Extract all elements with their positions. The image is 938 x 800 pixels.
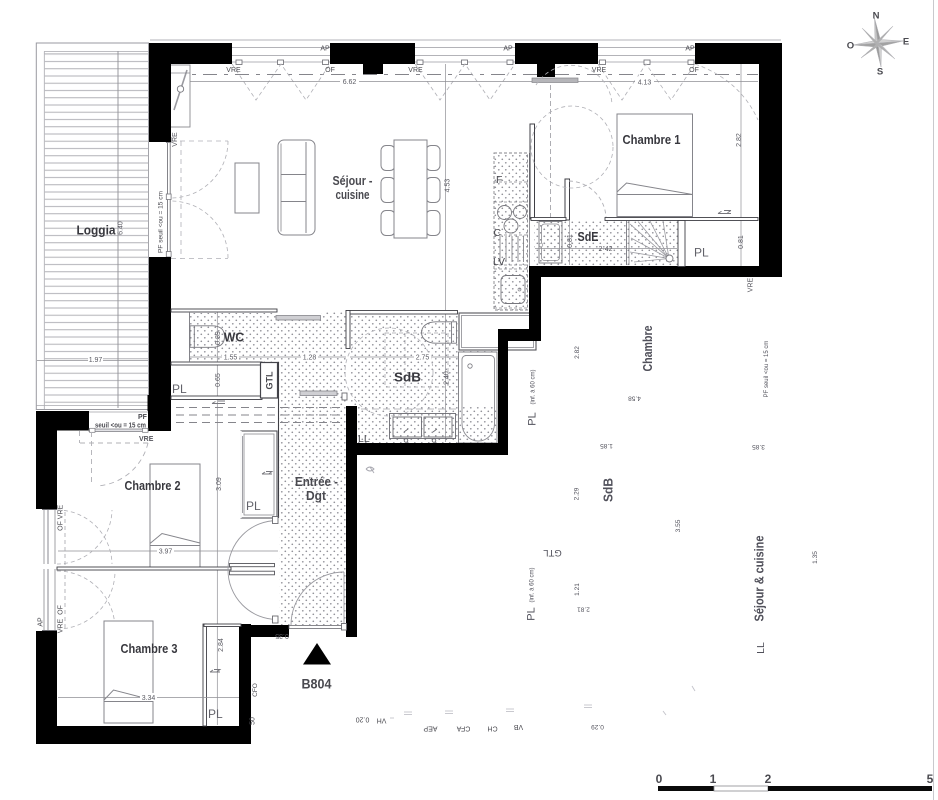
svg-text:Séjour & cuisine: Séjour & cuisine: [753, 535, 767, 621]
svg-text:cuisine: cuisine: [336, 187, 370, 202]
svg-text:AP: AP: [503, 46, 513, 53]
svg-text:2.82: 2.82: [574, 346, 581, 359]
svg-text:B804: B804: [302, 677, 332, 692]
svg-text:VRE: VRE: [172, 132, 179, 147]
svg-text:Chambre 3: Chambre 3: [121, 641, 178, 656]
svg-text:1.55: 1.55: [224, 355, 238, 362]
svg-text:1.28: 1.28: [303, 355, 317, 362]
svg-text:VRE: VRE: [226, 67, 241, 74]
svg-text:PL: PL: [527, 412, 539, 425]
svg-text:2·42: 2·42: [598, 246, 612, 253]
svg-text:VRE: VRE: [58, 618, 65, 633]
svg-text:1.97: 1.97: [89, 357, 103, 364]
svg-text:3.55: 3.55: [675, 519, 682, 532]
svg-text:WC: WC: [224, 330, 245, 345]
svg-text:3.85: 3.85: [752, 443, 765, 450]
svg-text:OF: OF: [325, 67, 335, 74]
svg-text:0.65: 0.65: [215, 373, 222, 387]
svg-text:2.82: 2.82: [736, 133, 743, 147]
svg-text:2.29: 2.29: [574, 487, 581, 500]
svg-text:OF: OF: [58, 605, 65, 615]
svg-text:0.81: 0.81: [738, 235, 745, 249]
svg-text:VRE: VRE: [592, 67, 607, 74]
svg-text:2.40: 2.40: [444, 371, 451, 385]
svg-text:seuil <ou = 15 cm: seuil <ou = 15 cm: [95, 423, 146, 430]
svg-text:E: E: [903, 37, 909, 48]
svg-text:2.84: 2.84: [218, 638, 225, 652]
svg-text:50: 50: [250, 717, 257, 725]
svg-text:O: O: [847, 41, 854, 52]
svg-text:PL: PL: [172, 382, 187, 396]
svg-text:VB: VB: [514, 723, 524, 730]
svg-text:LL: LL: [755, 642, 767, 654]
svg-text:0.81: 0.81: [567, 234, 574, 248]
svg-text:AEP: AEP: [423, 725, 437, 732]
svg-text:GTL: GTL: [265, 371, 275, 389]
svg-text:AP: AP: [320, 46, 330, 53]
svg-text:LV: LV: [493, 256, 505, 268]
svg-text:(inf. à 60 cm): (inf. à 60 cm): [531, 369, 537, 404]
svg-text:Entrée -: Entrée -: [295, 474, 338, 489]
svg-text:(inf. à 60 cm): (inf. à 60 cm): [530, 567, 536, 602]
svg-text:2.75: 2.75: [416, 355, 430, 362]
svg-text:SdE: SdE: [578, 229, 599, 244]
svg-text:4.58: 4.58: [628, 395, 641, 402]
svg-text:0.20: 0.20: [356, 716, 370, 723]
svg-text:0: 0: [656, 772, 663, 786]
svg-text:PF seuil <ou = 15 cm: PF seuil <ou = 15 cm: [764, 341, 770, 398]
svg-text:1.85: 1.85: [600, 442, 613, 449]
svg-text:4.53: 4.53: [445, 179, 452, 193]
svg-text:3.34: 3.34: [142, 695, 156, 702]
svg-text:1.35: 1.35: [812, 551, 819, 564]
svg-text:PL: PL: [208, 707, 223, 721]
svg-text:Chambre 1: Chambre 1: [623, 132, 681, 147]
svg-text:S: S: [877, 67, 883, 78]
svg-text:SdB: SdB: [394, 370, 421, 385]
svg-text:C: C: [494, 227, 502, 239]
svg-text:PL: PL: [694, 246, 709, 260]
svg-text:CH: CH: [487, 725, 497, 732]
svg-text:VRE: VRE: [58, 504, 65, 519]
svg-text:Dgt: Dgt: [306, 488, 327, 503]
svg-text:0.35: 0.35: [275, 632, 289, 639]
svg-text:N: N: [873, 11, 880, 22]
svg-text:6.40: 6.40: [118, 221, 125, 235]
svg-text:0.29: 0.29: [591, 723, 604, 730]
svg-text:SdB: SdB: [602, 478, 616, 502]
svg-text:Chambre: Chambre: [641, 325, 655, 371]
svg-text:Chambre 2: Chambre 2: [125, 478, 181, 493]
svg-text:VRE: VRE: [139, 436, 154, 443]
svg-text:OF: OF: [58, 521, 65, 531]
svg-text:0.89: 0.89: [215, 331, 222, 345]
svg-text:2: 2: [765, 772, 772, 786]
svg-text:VH: VH: [377, 717, 387, 724]
svg-text:VRE: VRE: [408, 67, 423, 74]
svg-text:3.97: 3.97: [159, 549, 173, 556]
svg-text:CFA: CFA: [456, 725, 470, 732]
svg-text:AP: AP: [38, 617, 45, 627]
svg-text:PL: PL: [526, 607, 538, 620]
svg-text:PF seuil <ou = 15 cm: PF seuil <ou = 15 cm: [159, 191, 165, 253]
svg-text:CFO: CFO: [252, 683, 259, 697]
svg-text:Séjour -: Séjour -: [333, 173, 373, 188]
svg-text:3.09: 3.09: [216, 477, 223, 491]
svg-text:VRE: VRE: [748, 277, 755, 292]
svg-text:F: F: [496, 174, 502, 186]
svg-text:1.21: 1.21: [574, 583, 581, 596]
svg-text:PF: PF: [138, 414, 148, 421]
svg-text:AP: AP: [685, 46, 695, 53]
svg-text:GTL: GTL: [543, 547, 561, 558]
svg-text:Loggia: Loggia: [77, 223, 117, 238]
svg-text:2.81: 2.81: [577, 606, 590, 613]
svg-text:5: 5: [927, 772, 934, 786]
svg-text:PL: PL: [246, 499, 261, 513]
svg-text:OF: OF: [689, 67, 699, 74]
svg-text:6.62: 6.62: [343, 79, 357, 86]
svg-text:4.13: 4.13: [638, 80, 652, 87]
svg-text:1: 1: [710, 772, 717, 786]
